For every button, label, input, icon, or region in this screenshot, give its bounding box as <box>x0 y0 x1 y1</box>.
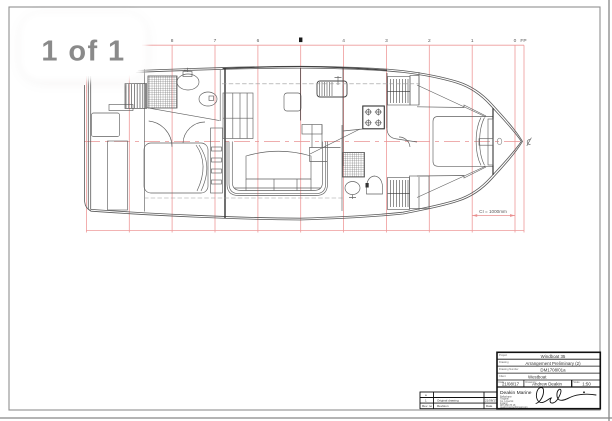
svg-text:6: 6 <box>257 38 260 44</box>
svg-text:Westboat: Westboat <box>528 375 547 380</box>
svg-text:DM1708/01a: DM1708/01a <box>540 368 566 373</box>
svg-text:Drawn by: Drawn by <box>525 380 537 384</box>
svg-text:deakinmarine@gmail.com: deakinmarine@gmail.com <box>500 406 528 409</box>
svg-text:2: 2 <box>428 38 431 44</box>
svg-text:Andrew Deakin: Andrew Deakin <box>532 382 562 387</box>
svg-text:Original drawing: Original drawing <box>437 399 459 403</box>
svg-text:Client: Client <box>499 374 506 378</box>
svg-text:a: a <box>425 393 427 397</box>
svg-text:4: 4 <box>342 38 345 44</box>
svg-text:21/08/17: 21/08/17 <box>502 382 520 387</box>
svg-text:CI = 1000mm: CI = 1000mm <box>479 209 507 214</box>
svg-text:Revision: Revision <box>437 404 449 408</box>
svg-text:Date: Date <box>486 404 493 408</box>
svg-text:Project: Project <box>499 353 507 357</box>
svg-text:Scale: Scale <box>573 380 580 384</box>
svg-text:Windboat 35: Windboat 35 <box>541 354 566 359</box>
svg-text:FP: FP <box>520 38 526 44</box>
svg-text:21/08/17: 21/08/17 <box>485 399 497 403</box>
svg-text:8: 8 <box>171 38 174 44</box>
svg-text:0: 0 <box>514 38 517 44</box>
svg-text:Arrangement Preliminary (2): Arrangement Preliminary (2) <box>525 361 581 366</box>
svg-text:1: 1 <box>425 399 427 403</box>
svg-text:Drawing: Drawing <box>499 360 509 364</box>
svg-text:Date: Date <box>499 380 505 384</box>
svg-text:Drawing Number: Drawing Number <box>499 367 519 371</box>
svg-text:Rev. no: Rev. no <box>422 404 432 408</box>
svg-text:7: 7 <box>214 38 217 44</box>
svg-text:1:50: 1:50 <box>582 382 591 387</box>
svg-text:1: 1 <box>471 38 474 44</box>
svg-text:3: 3 <box>385 38 388 44</box>
